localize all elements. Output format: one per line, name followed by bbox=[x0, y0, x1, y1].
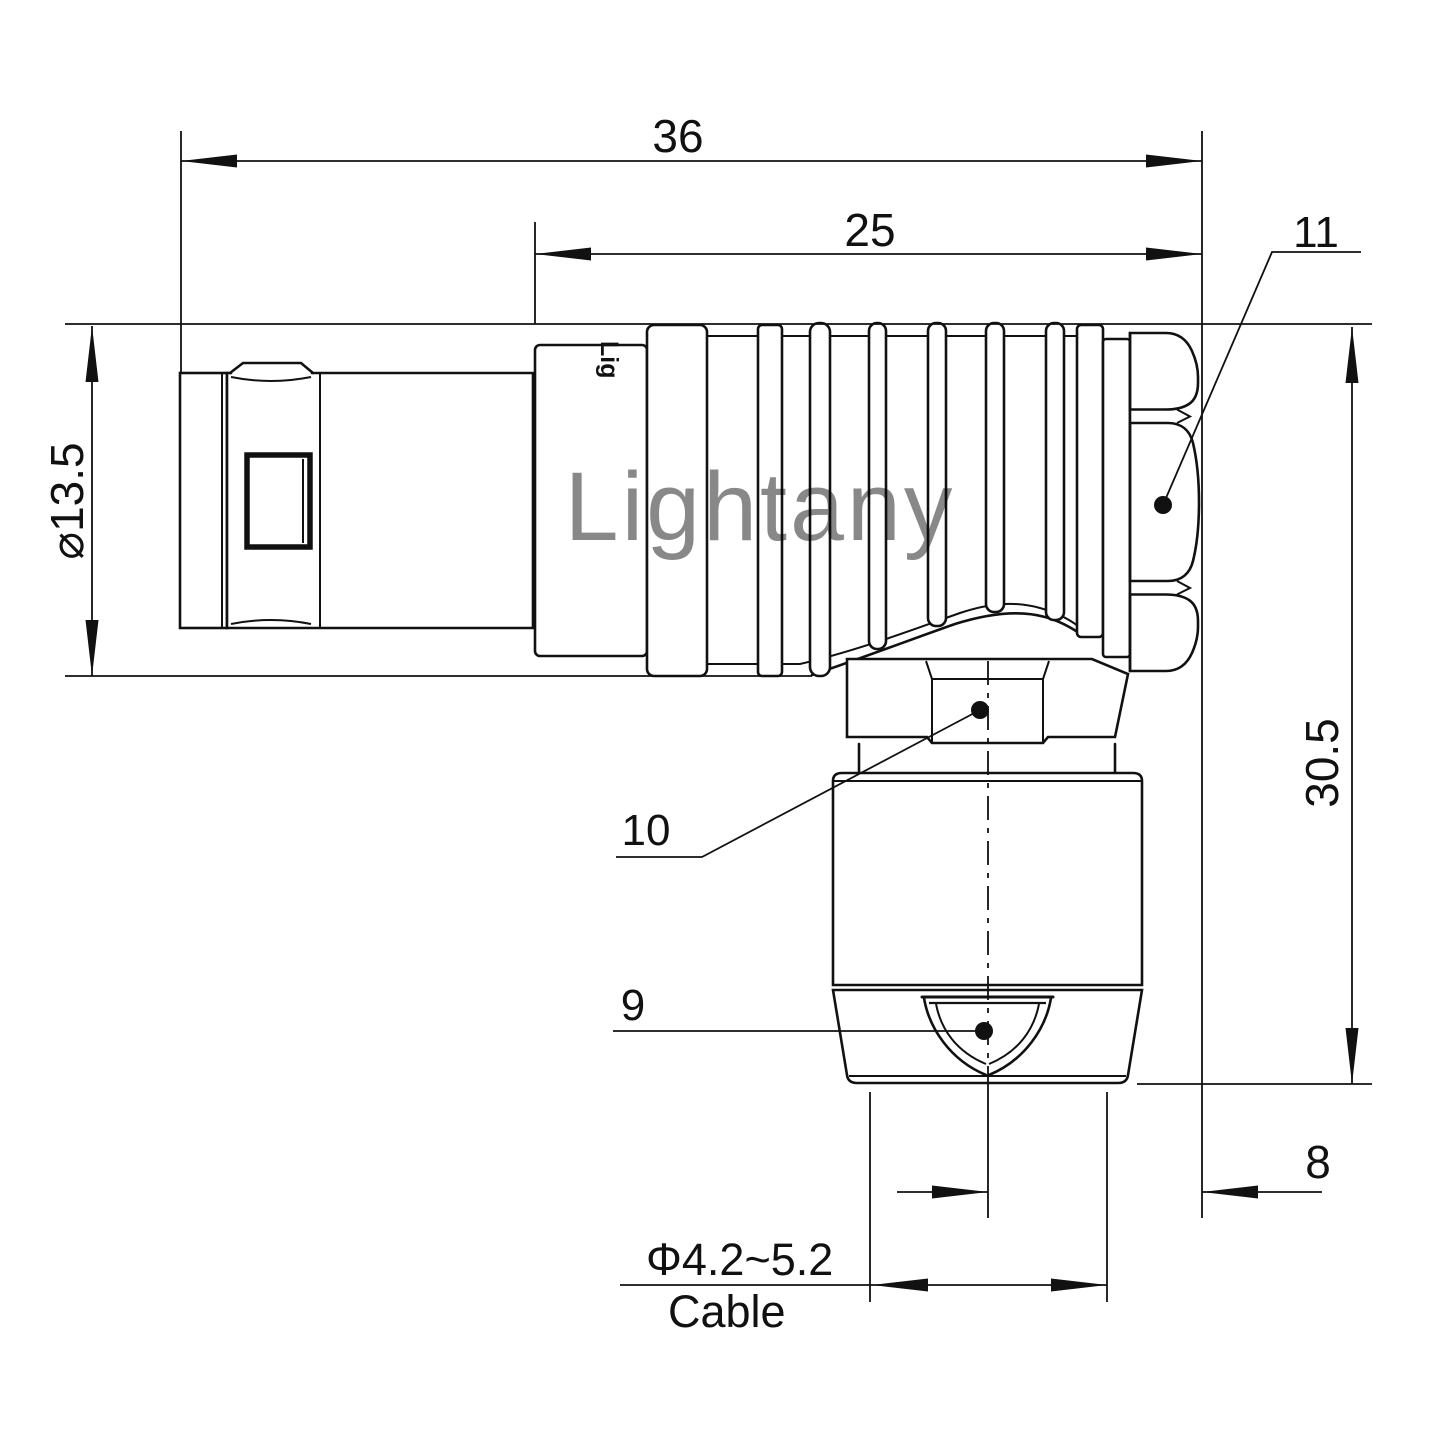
dim-axis-offset: 8 bbox=[897, 1136, 1331, 1199]
cable-diameter-label: Φ4.2~5.2 bbox=[646, 1234, 833, 1285]
dim-25-label: 25 bbox=[844, 204, 895, 256]
front-cap bbox=[180, 373, 227, 628]
callout-11-label: 11 bbox=[1293, 208, 1339, 257]
dim-cable-range: Φ4.2~5.2 Cable bbox=[620, 1234, 1107, 1337]
cable-word-label: Cable bbox=[668, 1286, 786, 1337]
rib-4 bbox=[986, 323, 1004, 612]
watermark-text: Lightany bbox=[565, 452, 956, 561]
barrel-body bbox=[227, 373, 533, 628]
gland-neck bbox=[859, 744, 1115, 773]
extension-lines bbox=[65, 131, 1372, 1302]
callout-9-label: 9 bbox=[621, 981, 645, 1030]
connector-drawing: 36 25 ⌀13.5 30.5 8 Φ4.2~5.2 Cable bbox=[0, 0, 1440, 1440]
technical-drawing-page: 36 25 ⌀13.5 30.5 8 Φ4.2~5.2 Cable bbox=[0, 0, 1440, 1440]
dim-8-label: 8 bbox=[1305, 1136, 1331, 1188]
dim-rear-length: 25 bbox=[535, 204, 1202, 261]
dim-front-diameter: ⌀13.5 bbox=[41, 326, 99, 676]
body-logo-text: Lig bbox=[595, 341, 623, 379]
dim-30-5-label: 30.5 bbox=[1296, 718, 1348, 808]
dim-36-label: 36 bbox=[652, 110, 703, 162]
front-plug-barrel bbox=[180, 363, 533, 628]
dim-d13-5-label: ⌀13.5 bbox=[41, 442, 93, 559]
rib-5 bbox=[1046, 323, 1064, 620]
back-collar bbox=[1103, 339, 1130, 657]
alignment-key-tab bbox=[230, 363, 313, 373]
back-flange bbox=[1077, 325, 1103, 637]
dim-overall-length: 36 bbox=[181, 110, 1202, 168]
dim-total-height: 30.5 bbox=[1296, 327, 1359, 1084]
callout-10-label: 10 bbox=[622, 806, 671, 855]
